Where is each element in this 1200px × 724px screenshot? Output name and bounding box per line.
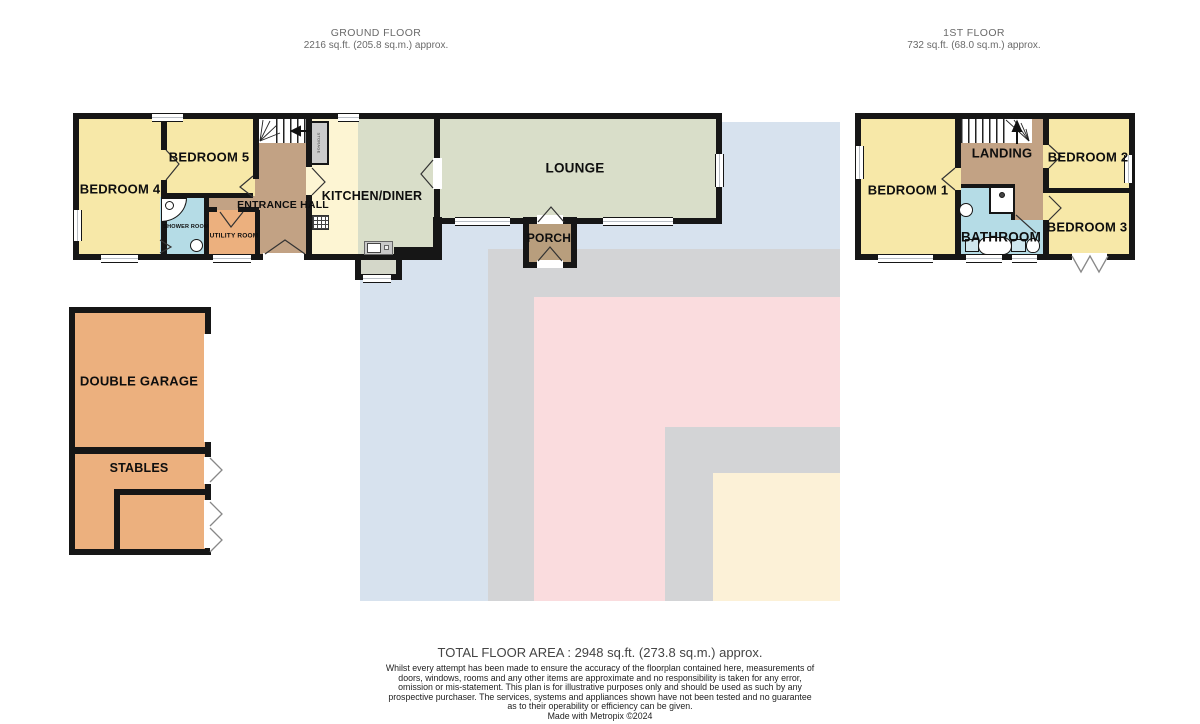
room-label-double-garage: DOUBLE GARAGE xyxy=(80,374,198,389)
wall xyxy=(1043,168,1049,190)
window xyxy=(152,113,183,122)
wall xyxy=(114,489,120,549)
first-floor-area: 732 sq.ft. (68.0 sq.m.) approx. xyxy=(844,40,1104,53)
room-label-utility-room: UTILITY ROOM xyxy=(210,233,259,240)
exterior-door-leaf xyxy=(210,528,222,552)
room-label-shower-room: SHOWER ROOM xyxy=(163,224,209,230)
room-label-entrance-hall: ENTRANCE HALL xyxy=(237,199,329,211)
wall xyxy=(253,119,259,179)
first-floor-title: 1ST FLOOR xyxy=(844,27,1104,40)
window xyxy=(213,254,251,263)
background-block-cream xyxy=(713,473,840,601)
total-floor-area: TOTAL FLOOR AREA : 2948 sq.ft. (273.8 sq… xyxy=(300,645,900,660)
room-label-bedroom2: BEDROOM 2 xyxy=(1048,150,1129,165)
exterior-door-leaf xyxy=(210,458,222,482)
window xyxy=(966,254,1002,263)
garage-door-opening xyxy=(204,334,211,442)
room-label-landing: LANDING xyxy=(972,146,1033,161)
room-label-lounge: LOUNGE xyxy=(546,161,605,176)
window xyxy=(855,146,864,179)
window xyxy=(455,217,510,226)
toilet xyxy=(190,239,203,252)
window xyxy=(101,254,138,263)
ground-floor-title: GROUND FLOOR xyxy=(246,27,506,40)
ground-floor-header: GROUND FLOOR 2216 sq.ft. (205.8 sq.m.) a… xyxy=(246,27,506,53)
shower-enclosure xyxy=(989,186,1015,214)
front-door-opening xyxy=(263,253,304,261)
stables-door-opening xyxy=(204,457,211,484)
room-label-bedroom1: BEDROOM 1 xyxy=(868,183,949,198)
window xyxy=(338,113,359,122)
outbuilding-walls xyxy=(69,307,211,555)
room-label-bedroom4: BEDROOM 4 xyxy=(80,182,161,197)
wall xyxy=(208,207,217,212)
room-label-bedroom3: BEDROOM 3 xyxy=(1047,220,1128,235)
floorplan-canvas: GROUND FLOOR 2216 sq.ft. (205.8 sq.m.) a… xyxy=(0,0,1200,724)
disclaimer-text: Whilst every attempt has been made to en… xyxy=(383,664,817,712)
wall xyxy=(114,489,211,495)
room-label-bathroom: BATHROOM xyxy=(961,230,1041,245)
metropix-credit: Made with Metropix ©2024 xyxy=(450,711,750,721)
stables-store-door-opening xyxy=(204,500,211,548)
window xyxy=(603,217,673,226)
sink xyxy=(959,203,973,217)
first-floor-header: 1ST FLOOR 732 sq.ft. (68.0 sq.m.) approx… xyxy=(844,27,1104,53)
shower-head xyxy=(999,192,1005,198)
window xyxy=(73,210,82,241)
wall xyxy=(69,447,211,454)
kitchen-hob xyxy=(384,245,389,250)
porch-door-opening xyxy=(537,215,563,224)
porch-door-opening xyxy=(537,260,563,268)
window xyxy=(715,154,724,187)
room-label-kitchen-diner: KITCHEN/DINER xyxy=(322,189,423,203)
room-label-stables: STABLES xyxy=(110,461,169,475)
wall xyxy=(1043,119,1049,145)
room-label-porch: PORCH xyxy=(527,231,571,245)
wall xyxy=(955,119,961,168)
wall xyxy=(394,247,440,255)
wall xyxy=(1043,188,1129,193)
room-label-bedroom5: BEDROOM 5 xyxy=(169,150,250,165)
ground-floor-area: 2216 sq.ft. (205.8 sq.m.) approx. xyxy=(246,40,506,53)
boiler-grid-icon xyxy=(312,215,329,230)
window xyxy=(1012,254,1037,263)
bedroom3-door-opening xyxy=(1072,253,1107,261)
wall xyxy=(161,119,167,150)
exterior-door-leaf xyxy=(210,502,222,526)
room-label-storage: STORAGE xyxy=(317,133,322,154)
shower-drain xyxy=(165,201,174,210)
kitchen-lounge-door-opening xyxy=(433,158,442,189)
kitchen-sink xyxy=(367,243,381,253)
window xyxy=(878,254,933,263)
window xyxy=(363,274,391,283)
